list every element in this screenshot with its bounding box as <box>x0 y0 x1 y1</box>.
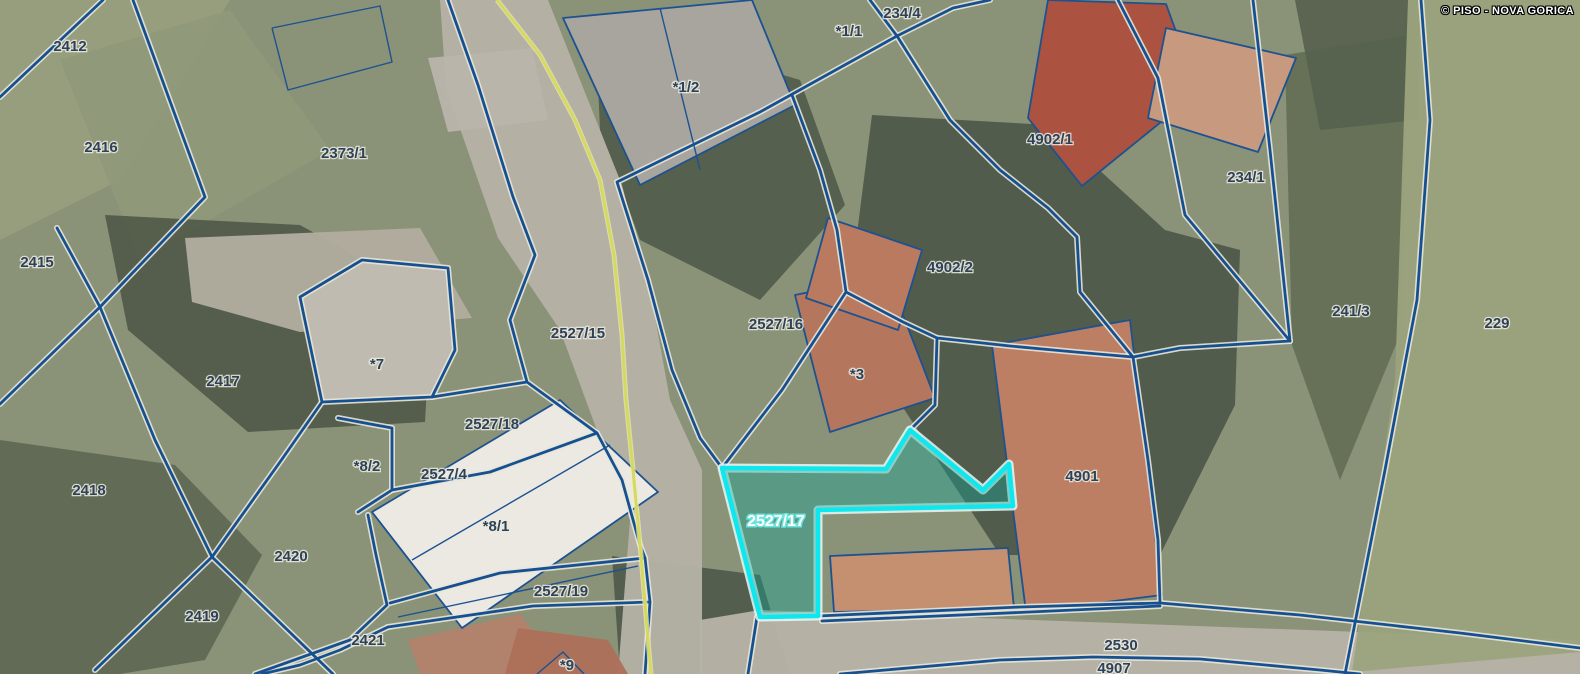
parcel-label: 2530 <box>1104 637 1137 654</box>
parcel-label: 2527/4 <box>421 466 468 483</box>
parcel-label: *1/2 <box>673 79 700 96</box>
parcel-label: *1/1 <box>836 23 863 40</box>
parcel-label: 2527/15 <box>551 325 605 342</box>
parcel-label: 229 <box>1484 315 1509 332</box>
parcel-label: 4902/1 <box>1027 131 1073 148</box>
parcel-label: *3 <box>850 366 864 383</box>
parcel-label: *8/1 <box>483 518 510 535</box>
parcel-label: 4907 <box>1097 660 1130 674</box>
cadastral-map[interactable]: 241224162373/124152417*72527/18*8/22527/… <box>0 0 1580 674</box>
parcel-label: 2417 <box>206 373 239 390</box>
building-footprint <box>830 548 1014 612</box>
parcel-label: 4902/2 <box>927 259 973 276</box>
highlighted-parcel-label: 2527/17 <box>747 513 805 530</box>
parcel-label: 2416 <box>84 139 117 156</box>
parcel-label: 241/3 <box>1332 303 1370 320</box>
parcel-label: 2373/1 <box>321 145 367 162</box>
parcel-label: 4901 <box>1065 468 1098 485</box>
parcel-label: 2527/18 <box>465 416 519 433</box>
parcel-label: 234/1 <box>1227 169 1265 186</box>
parcel-label: *9 <box>560 657 574 674</box>
parcel-label: 2415 <box>20 254 53 271</box>
copyright-text: © PISO - NOVA GORICA <box>1441 5 1574 17</box>
parcel-label: *7 <box>370 356 384 373</box>
parcel-label: 234/4 <box>883 5 921 22</box>
parcel-label: 2419 <box>185 608 218 625</box>
parcel-label: *8/2 <box>354 458 381 475</box>
parcel-label: 2412 <box>53 38 86 55</box>
parcel-label: 2527/16 <box>749 316 803 333</box>
parcel-label: 2421 <box>351 632 384 649</box>
parcel-label: 2527/19 <box>534 583 588 600</box>
parcel-label: 2418 <box>72 482 105 499</box>
map-viewport[interactable]: 241224162373/124152417*72527/18*8/22527/… <box>0 0 1580 674</box>
parcel-label: 2420 <box>274 548 307 565</box>
